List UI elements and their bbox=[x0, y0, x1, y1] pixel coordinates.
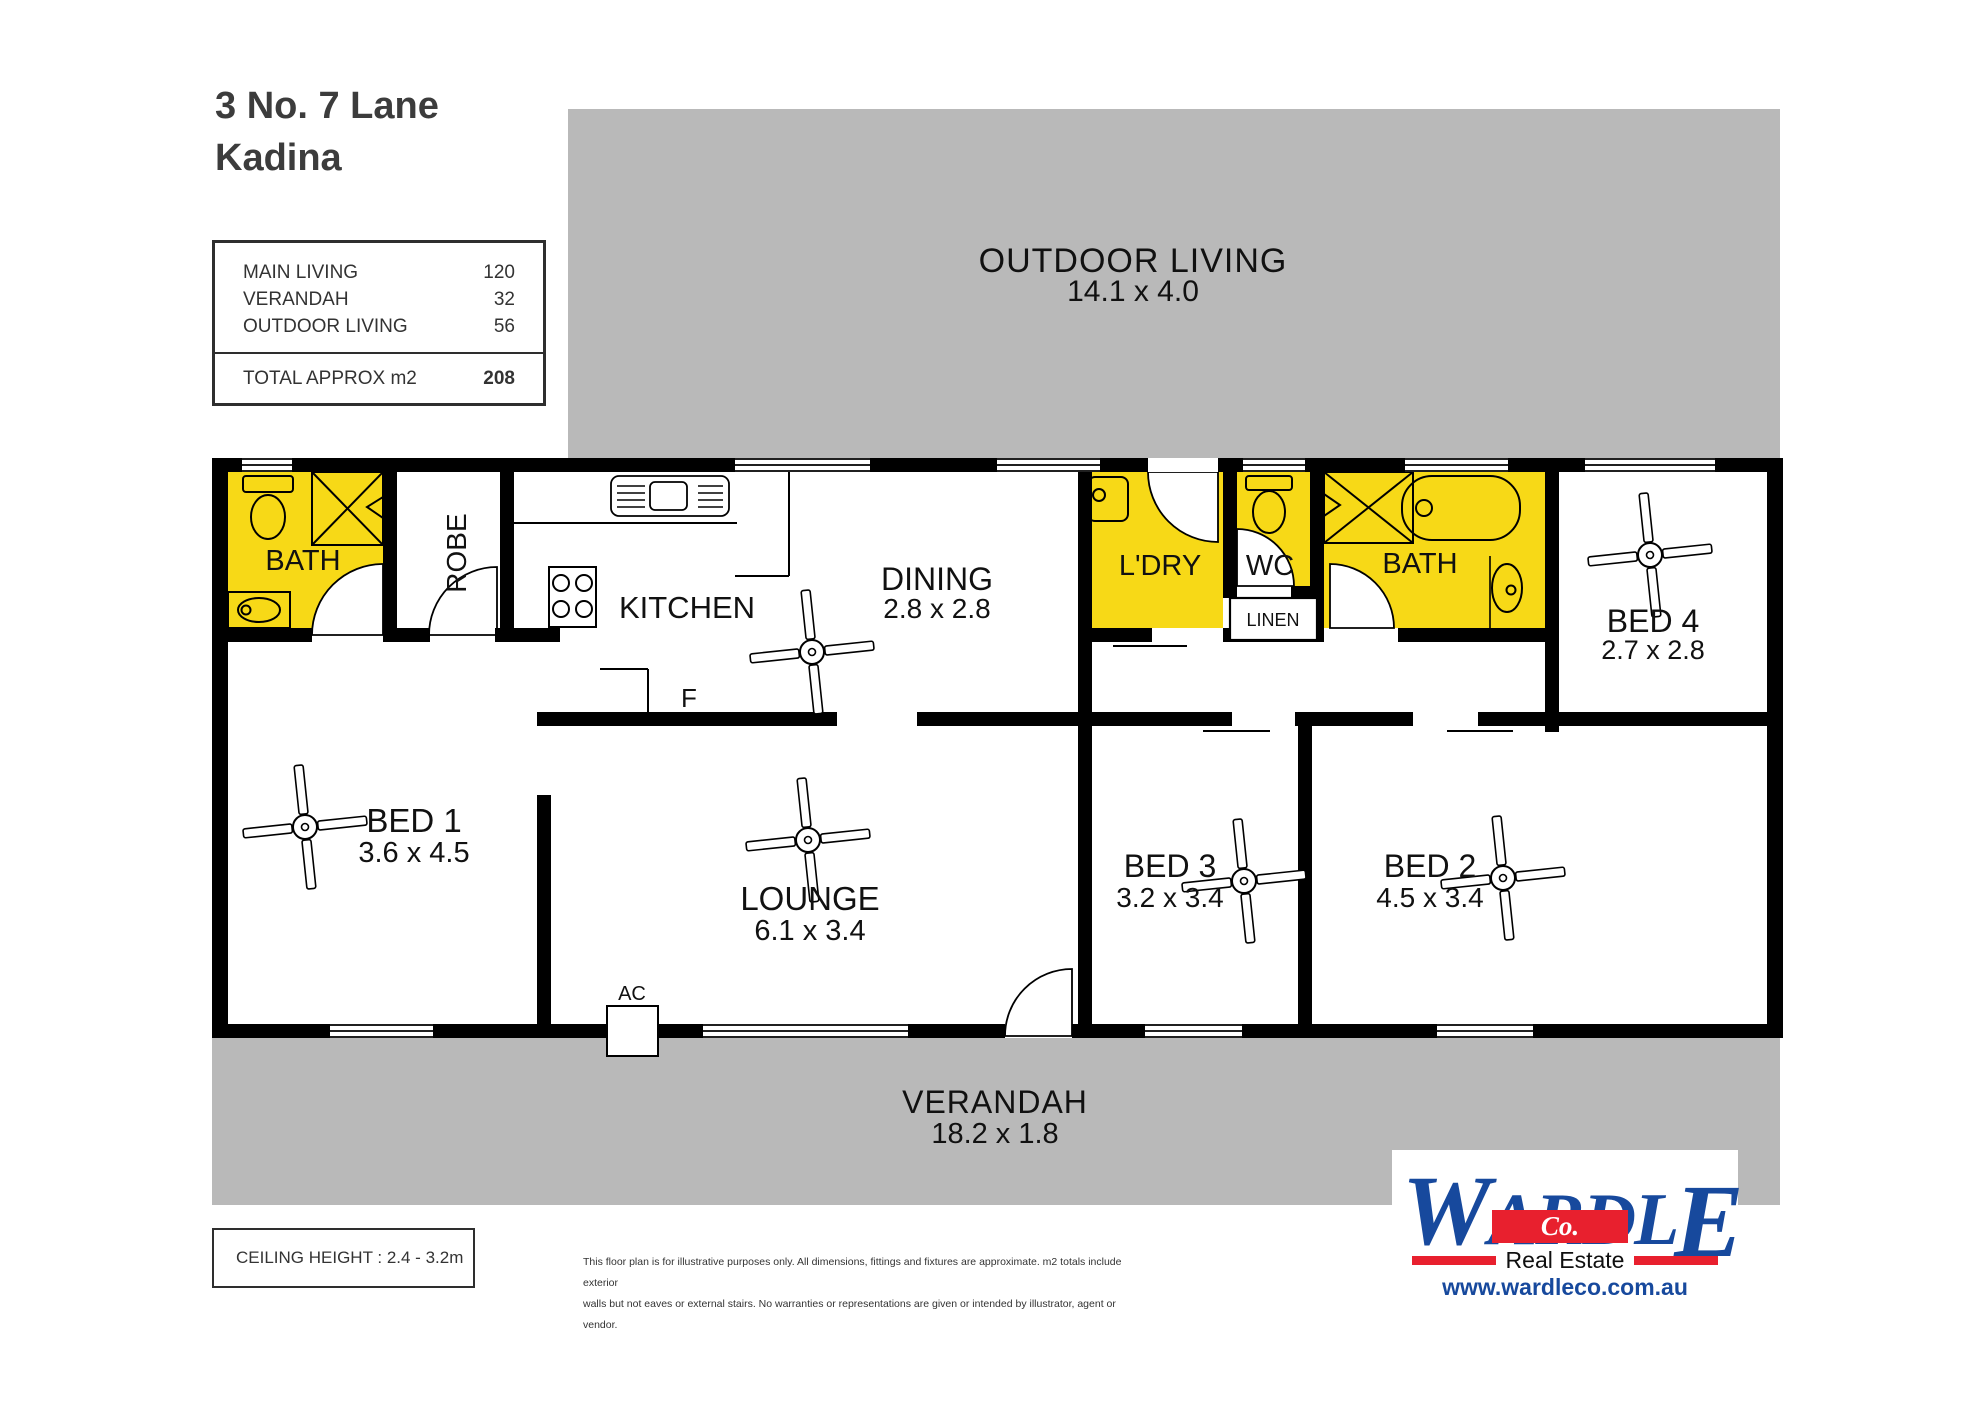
dining-dims: 2.8 x 2.8 bbox=[883, 593, 990, 624]
ceiling-height-box: CEILING HEIGHT : 2.4 - 3.2m bbox=[212, 1228, 475, 1288]
agency-co-badge: Co. bbox=[1492, 1210, 1628, 1243]
agency-website: www.wardleco.com.au bbox=[1392, 1274, 1738, 1301]
agency-tagline-row: Real Estate bbox=[1392, 1247, 1738, 1274]
agency-logo: WARDLE Co. Real Estate www.wardleco.com.… bbox=[1392, 1150, 1738, 1320]
outdoor-living-dims: 14.1 x 4.0 bbox=[1067, 275, 1199, 308]
kitchen-label: KITCHEN bbox=[619, 590, 755, 625]
bed1-label: BED 1 bbox=[366, 802, 461, 839]
bed4-dims: 2.7 x 2.8 bbox=[1601, 635, 1705, 665]
dining-label: DINING bbox=[881, 561, 993, 597]
bath1-label: BATH bbox=[265, 545, 340, 577]
tagline-bar-left bbox=[1412, 1256, 1496, 1265]
fridge-label: F bbox=[681, 683, 697, 713]
lounge-label: LOUNGE bbox=[740, 880, 879, 917]
ac-unit-icon bbox=[607, 1006, 658, 1056]
ac-label: AC bbox=[618, 983, 646, 1005]
bed2-dims: 4.5 x 3.4 bbox=[1376, 882, 1483, 913]
bed1-dims: 3.6 x 4.5 bbox=[358, 837, 469, 869]
floorplan-page: 3 No. 7 Lane Kadina MAIN LIVING 120 VERA… bbox=[0, 0, 1984, 1403]
ceiling-height-label: CEILING HEIGHT : 2.4 - 3.2m bbox=[236, 1248, 463, 1268]
robe-label: ROBE bbox=[441, 513, 472, 592]
bed4-label: BED 4 bbox=[1607, 603, 1699, 639]
disclaimer-line-2: walls but not eaves or external stairs. … bbox=[583, 1294, 1123, 1336]
laundry-label: L'DRY bbox=[1119, 550, 1201, 582]
wc-label: WC bbox=[1246, 550, 1294, 582]
agency-tagline: Real Estate bbox=[1506, 1247, 1625, 1274]
verandah-dims: 18.2 x 1.8 bbox=[931, 1118, 1058, 1150]
bath2-label: BATH bbox=[1382, 548, 1457, 580]
verandah-label: VERANDAH bbox=[902, 1084, 1088, 1120]
tagline-bar-right bbox=[1634, 1256, 1718, 1265]
agency-co-text: Co. bbox=[1541, 1211, 1579, 1242]
lounge-dims: 6.1 x 3.4 bbox=[754, 915, 865, 947]
linen-label: LINEN bbox=[1246, 610, 1299, 630]
bed2-label: BED 2 bbox=[1384, 848, 1476, 884]
bed3-dims: 3.2 x 3.4 bbox=[1116, 882, 1223, 913]
disclaimer: This floor plan is for illustrative purp… bbox=[583, 1252, 1123, 1336]
bed3-label: BED 3 bbox=[1124, 848, 1216, 884]
disclaimer-line-1: This floor plan is for illustrative purp… bbox=[583, 1252, 1123, 1294]
